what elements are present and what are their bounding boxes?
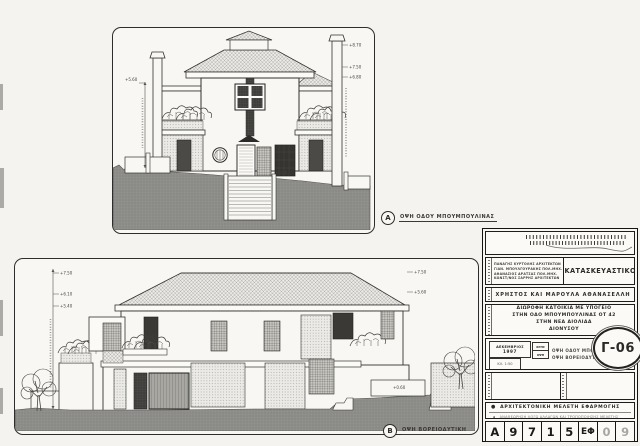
- grill-window: [309, 359, 334, 394]
- study-primary: ●ΑΡΧΙΤΕΚΤΟΝΙΚΗ ΜΕΛΕΤΗ ΕΦΑΡΜΟΓΗΣ: [489, 403, 631, 413]
- garden-wall-right: [344, 172, 370, 190]
- house-elevation-b: [31, 273, 409, 411]
- porthole-window: [213, 148, 227, 162]
- svg-text:+5.60: +5.60: [125, 77, 138, 82]
- side-door-right: [309, 140, 323, 171]
- row-side-label: [561, 373, 567, 399]
- elevation-b-drawing: +7.50 +6.10 +5.40 +7.50 +5.60 +0.60: [14, 258, 479, 435]
- svg-text:+5.40: +5.40: [60, 304, 73, 309]
- hip-roof: [184, 50, 316, 72]
- lattice-window: [257, 147, 271, 176]
- code-cell: A: [486, 422, 504, 441]
- hip-roof: [119, 273, 405, 305]
- flue: [246, 110, 254, 136]
- code-cell: ΕΦ: [578, 422, 597, 441]
- elevation-a-marker: A: [381, 211, 395, 225]
- garage-door: [149, 373, 189, 409]
- study-secondary: ▪ΑΝΑΘΕΩΡΗΣΗ ΛΟΓΩ ΑΛΛΑΓΩΝ ΚΑΙ ΤΡΟΠΟΠΟΙΗΣΗ…: [489, 413, 631, 419]
- svg-text:+5.60: +5.60: [414, 290, 427, 295]
- bullet-icon: ●: [491, 404, 496, 410]
- row-side-label: [486, 373, 492, 399]
- grill-window: [381, 311, 394, 339]
- svg-text:+6.10: +6.10: [60, 292, 73, 297]
- project-line: ΔΙΟΝΥΣΟΥ: [549, 327, 579, 334]
- scan-artifact: [0, 388, 3, 414]
- bullet-icon: ▪: [493, 415, 496, 419]
- svg-text:+7.50: +7.50: [414, 270, 427, 275]
- tag-box-bottom: ΟΨΗ: [532, 350, 549, 359]
- elevation-a-title: ΟΨΗ ΟΔΟΥ ΜΠΟΥΜΠΟΥΛΙΝΑΣ: [399, 214, 497, 222]
- row-side-label: [486, 288, 492, 301]
- caption-elevation-a: A ΟΨΗ ΟΔΟΥ ΜΠΟΥΜΠΟΥΛΙΝΑΣ: [381, 211, 497, 225]
- entry-door: [237, 145, 255, 178]
- project-line: ΣΤΗΝ ΝΕΑ ΑΙΟΛΙΔΑ: [536, 320, 592, 327]
- approval-stamp-box: [485, 231, 635, 255]
- dimension-line: [51, 269, 55, 409]
- upper-window: [235, 84, 265, 110]
- svg-text:+7.50: +7.50: [60, 271, 73, 276]
- side-door-left: [177, 140, 191, 171]
- code-cell: 7: [522, 422, 541, 441]
- dark-window: [144, 317, 158, 351]
- scan-artifact: [0, 300, 3, 336]
- code-cell: 9: [615, 422, 634, 441]
- scan-artifact: [0, 84, 3, 110]
- owner-row: ΧΡΗΣΤΟΣ ΚΑΙ ΜΑΡΟΥΛΑ ΑΘΑΝΑΣΕΛΛΗ: [485, 287, 635, 302]
- scan-artifact: [0, 168, 4, 208]
- caption-elevation-b: B ΟΨΗ ΒΟΡΕΙΟΔΥΤΙΚΗ: [383, 424, 470, 438]
- architectural-sheet: +8.70 +7.50 +6.80 +5.60 ±0.00 A ΟΨΗ ΟΔΟΥ…: [0, 0, 640, 446]
- code-cell: 1: [541, 422, 560, 441]
- house-elevation-a: [157, 31, 346, 178]
- dark-window: [333, 313, 353, 339]
- code-cell: 0: [597, 422, 616, 441]
- grill-window: [211, 321, 227, 351]
- discipline-label: ΚΑΤΑΣΚΕΥΑΣΤΙΚΟ: [564, 258, 635, 284]
- basement-stair: [224, 174, 276, 220]
- owner-names: ΧΡΗΣΤΟΣ ΚΑΙ ΜΑΡΟΥΛΑ ΑΘΑΝΑΣΕΛΛΗ: [496, 292, 631, 298]
- grill-window: [103, 323, 121, 351]
- elevation-a-drawing: +8.70 +7.50 +6.80 +5.60 ±0.00: [112, 27, 375, 234]
- row-side-label: [486, 305, 492, 335]
- signatures-row: [485, 372, 635, 400]
- design-team-list: ΠΑΝΑΓΗΣ ΚΥΡΤΟΛΗΣ ΑΡΧΙΤΕΚΤΩΝ ΓΙΑΝ. ΜΠΟΥΛΓ…: [486, 258, 564, 284]
- signature-cell: [486, 373, 560, 399]
- row-side-label: [486, 258, 492, 284]
- study-type-row: ●ΑΡΧΙΤΕΚΤΟΝΙΚΗ ΜΕΛΕΤΗ ΕΦΑΡΜΟΓΗΣ ▪ΑΝΑΘΕΩΡ…: [485, 402, 635, 419]
- code-cell: 5: [560, 422, 579, 441]
- scale-box: ΚΛ. 1:50: [489, 358, 521, 370]
- svg-text:±0.00: ±0.00: [275, 171, 288, 176]
- signature-cell: [560, 373, 635, 399]
- grill-window: [264, 321, 280, 351]
- designers-row: ΠΑΝΑΓΗΣ ΚΥΡΤΟΛΗΣ ΑΡΧΙΤΕΚΤΩΝ ΓΙΑΝ. ΜΠΟΥΛΓ…: [485, 257, 635, 285]
- approval-stamp-marks: [486, 232, 634, 253]
- svg-text:+7.50: +7.50: [349, 65, 362, 70]
- date-box: ΔΕΚΕΜΒΡΙΟΣ 1997: [489, 341, 531, 358]
- svg-text:+6.80: +6.80: [349, 75, 362, 80]
- svg-text:+8.70: +8.70: [349, 43, 362, 48]
- boundary-wall: [431, 363, 475, 407]
- elevation-b-marker: B: [383, 424, 397, 438]
- lattice-door: [134, 373, 147, 409]
- skylight-roof: [226, 31, 272, 40]
- code-cell: 9: [504, 422, 523, 441]
- project-line: ΣΤΗΝ ΟΔΟ ΜΠΟΥΜΠΟΥΛΙΝΑΣ ΟΤ 42: [512, 313, 615, 320]
- elevation-b-title: ΟΨΗ ΒΟΡΕΙΟΔΥΤΙΚΗ: [401, 427, 470, 435]
- drawing-code-row: A 9 7 1 5 ΕΦ 0 9: [485, 421, 635, 442]
- svg-text:+0.60: +0.60: [393, 385, 406, 390]
- drawing-number-badge: Γ-06: [593, 327, 640, 369]
